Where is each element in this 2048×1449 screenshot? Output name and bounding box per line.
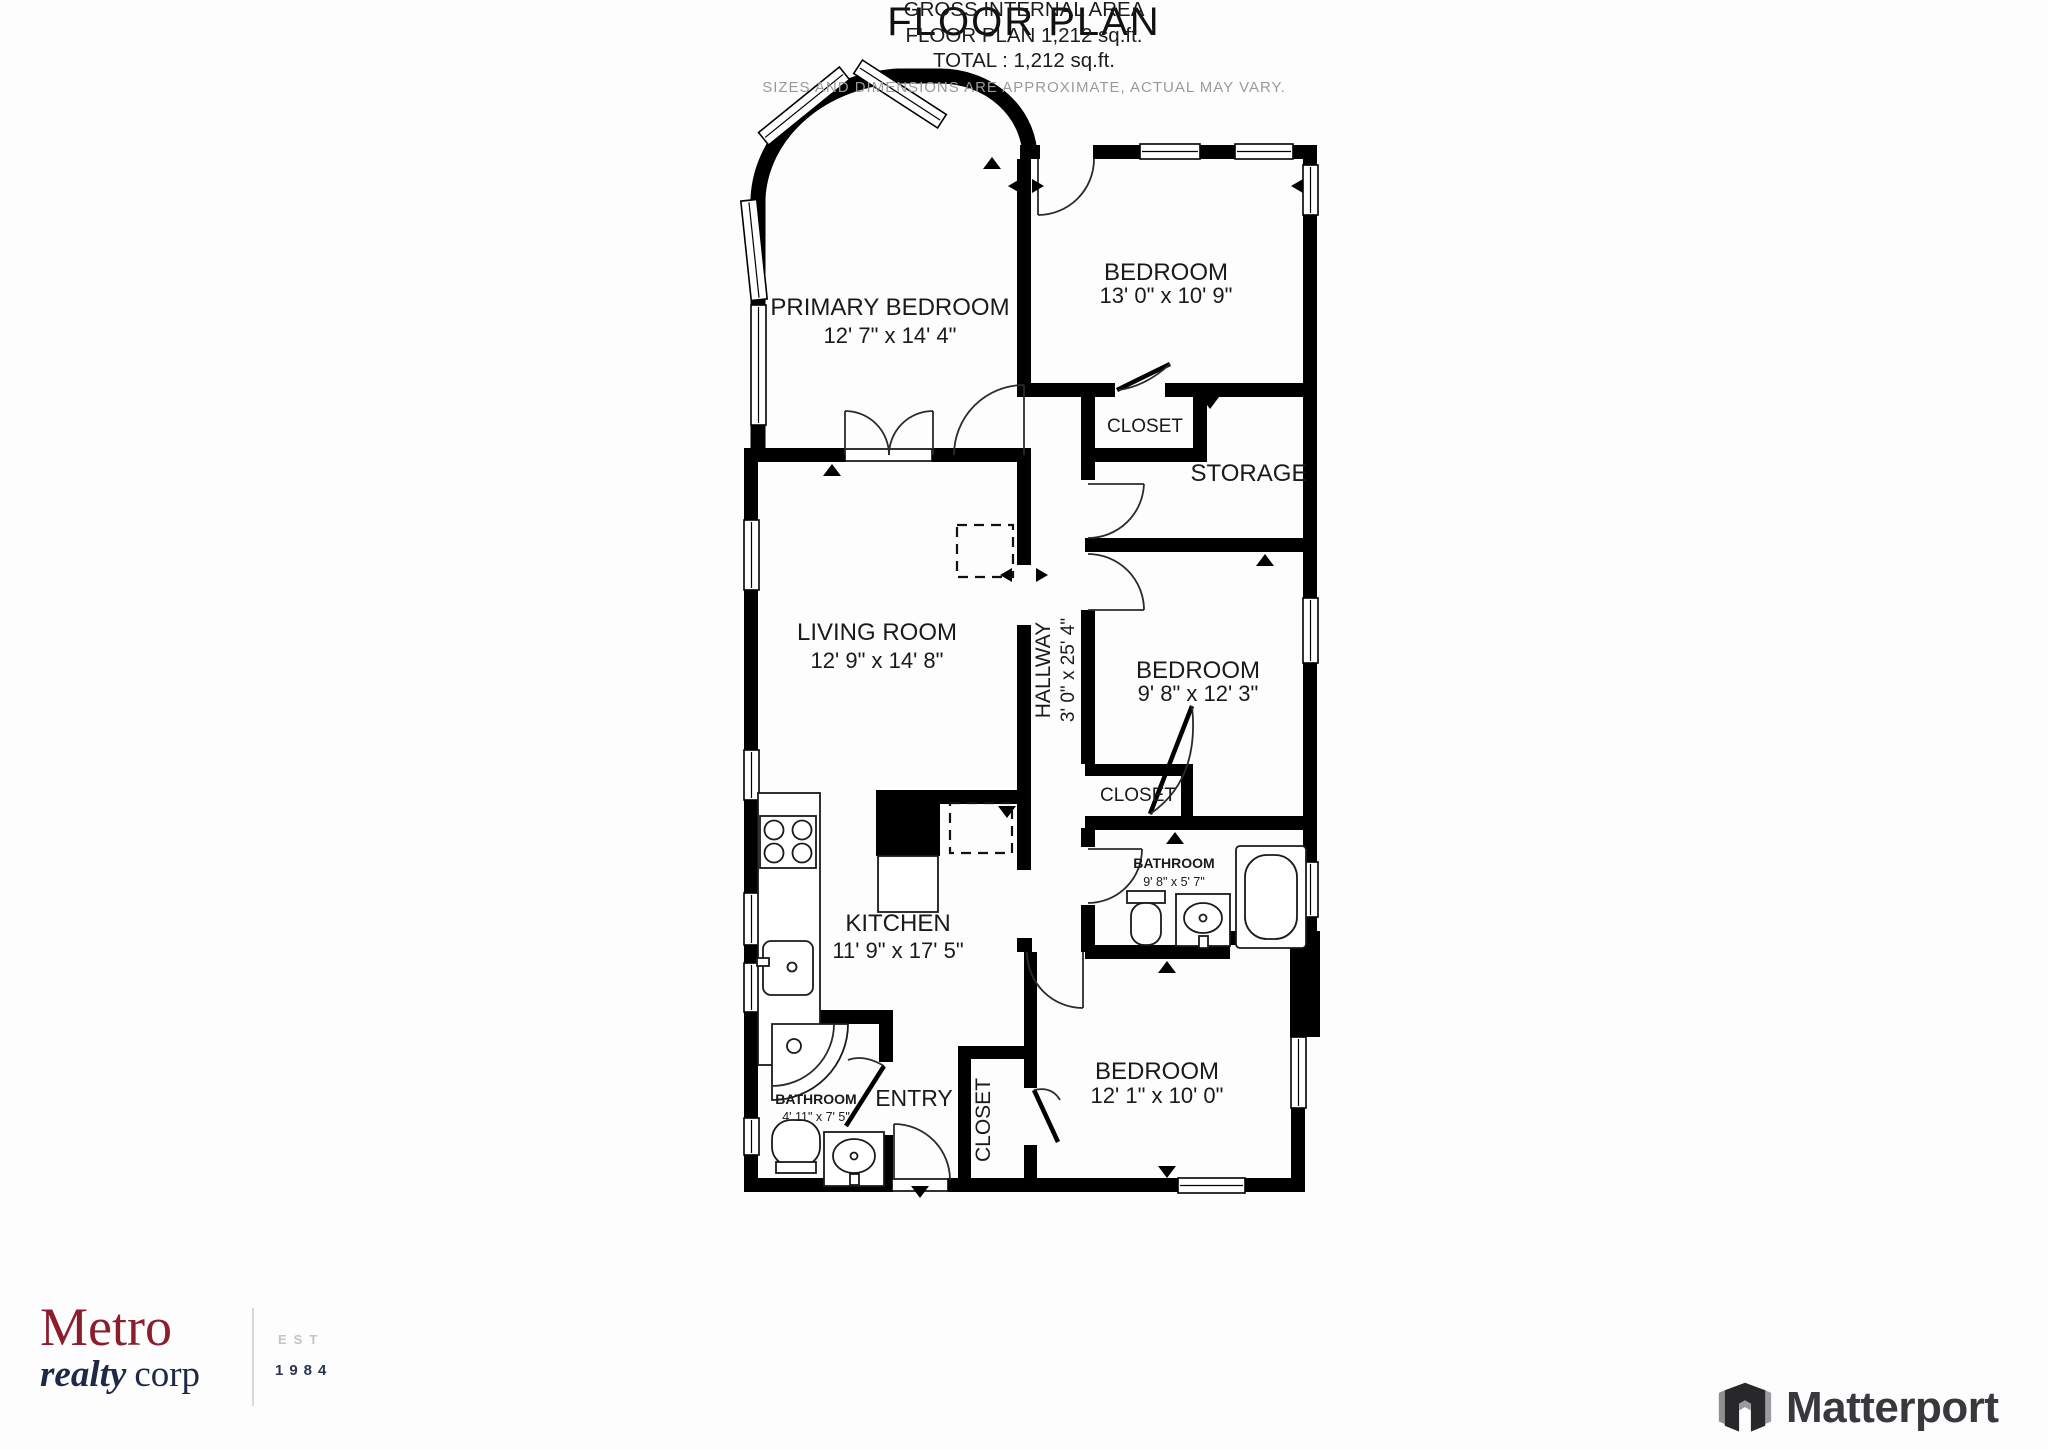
metro-logo-subtitle: realtycorp bbox=[40, 1356, 300, 1393]
room-label-bedroom-mid: BEDROOM bbox=[1136, 657, 1260, 684]
room-label-primary-bedroom: PRIMARY BEDROOM bbox=[770, 294, 1009, 321]
metro-logo-divider bbox=[252, 1308, 254, 1406]
bathroom-sink-icon-2 bbox=[824, 1132, 884, 1186]
room-label-living-room: LIVING ROOM bbox=[797, 619, 957, 646]
dashed-feature bbox=[957, 525, 1013, 577]
room-label-bathroom-bottom: BATHROOM bbox=[775, 1091, 856, 1107]
bathtub-icon bbox=[1236, 846, 1306, 948]
room-label-closet-bottom: CLOSET bbox=[972, 1078, 995, 1162]
room-label-bedroom-bottom: BEDROOM bbox=[1095, 1058, 1219, 1085]
room-dims-bedroom-top: 13' 0" x 10' 9" bbox=[1100, 283, 1233, 308]
disclaimer-text: SIZES AND DIMENSIONS ARE APPROXIMATE, AC… bbox=[0, 80, 2048, 95]
metro-logo-name: Metro bbox=[40, 1300, 300, 1354]
floor-plan-page: PRIMARY BEDROOM 12' 7" x 14' 4" BEDROOM … bbox=[0, 0, 2048, 1449]
room-label-bedroom-top: BEDROOM bbox=[1104, 259, 1228, 286]
gross-internal-area-label: GROSS INTERNAL AREA bbox=[0, 0, 2048, 21]
metro-logo-corp: corp bbox=[134, 1354, 200, 1395]
room-dims-kitchen: 11' 9" x 17' 5" bbox=[832, 938, 963, 963]
room-label-closet-top: CLOSET bbox=[1107, 416, 1183, 437]
room-dims-bedroom-bottom: 12' 1" x 10' 0" bbox=[1091, 1083, 1224, 1108]
metro-realty-logo: Metro realtycorp EST 1984 bbox=[40, 1300, 300, 1420]
room-dims-bathroom-mid: 9' 8" x 5' 7" bbox=[1143, 875, 1205, 889]
metro-logo-est: EST bbox=[278, 1332, 324, 1347]
room-dims-bedroom-mid: 9' 8" x 12' 3" bbox=[1138, 681, 1259, 706]
room-label-bathroom-mid: BATHROOM bbox=[1133, 855, 1214, 871]
bathroom-sink-icon bbox=[1176, 894, 1230, 948]
matterport-icon bbox=[1718, 1380, 1772, 1436]
room-label-hallway: HALLWAY bbox=[1032, 622, 1055, 718]
room-label-kitchen: KITCHEN bbox=[845, 910, 950, 937]
room-label-entry: ENTRY bbox=[875, 1085, 953, 1111]
room-dims-living-room: 12' 9" x 14' 8" bbox=[811, 648, 944, 673]
island-counter bbox=[878, 856, 938, 912]
room-dims-bathroom-bottom: 4' 11" x 7' 5" bbox=[782, 1110, 850, 1124]
shower-icon bbox=[772, 1024, 848, 1100]
primary-bedroom-bay-wall bbox=[741, 60, 1030, 462]
matterport-logo-text: Matterport bbox=[1786, 1383, 1999, 1433]
floor-plan-area-value: FLOOR PLAN 1,212 sq.ft. bbox=[0, 26, 2048, 47]
matterport-logo: Matterport bbox=[1718, 1380, 1999, 1436]
metro-logo-realty: realty bbox=[40, 1354, 126, 1395]
room-dims-hallway: 3' 0" x 25' 4" bbox=[1058, 618, 1079, 722]
toilet-icon-2 bbox=[772, 1120, 820, 1173]
stove-icon bbox=[760, 816, 816, 868]
room-dims-primary-bedroom: 12' 7" x 14' 4" bbox=[824, 323, 957, 348]
area-summary: GROSS INTERNAL AREA FLOOR PLAN 1,212 sq.… bbox=[0, 0, 2048, 95]
floor-plan-canvas: PRIMARY BEDROOM 12' 7" x 14' 4" BEDROOM … bbox=[0, 0, 2048, 1449]
total-area-value: TOTAL : 1,212 sq.ft. bbox=[0, 51, 2048, 72]
room-label-storage: STORAGE bbox=[1191, 460, 1308, 487]
toilet-icon bbox=[1127, 891, 1165, 945]
kitchen-sink-icon bbox=[757, 941, 813, 995]
metro-logo-year: 1984 bbox=[275, 1362, 332, 1379]
room-label-closet-mid: CLOSET bbox=[1100, 785, 1176, 806]
